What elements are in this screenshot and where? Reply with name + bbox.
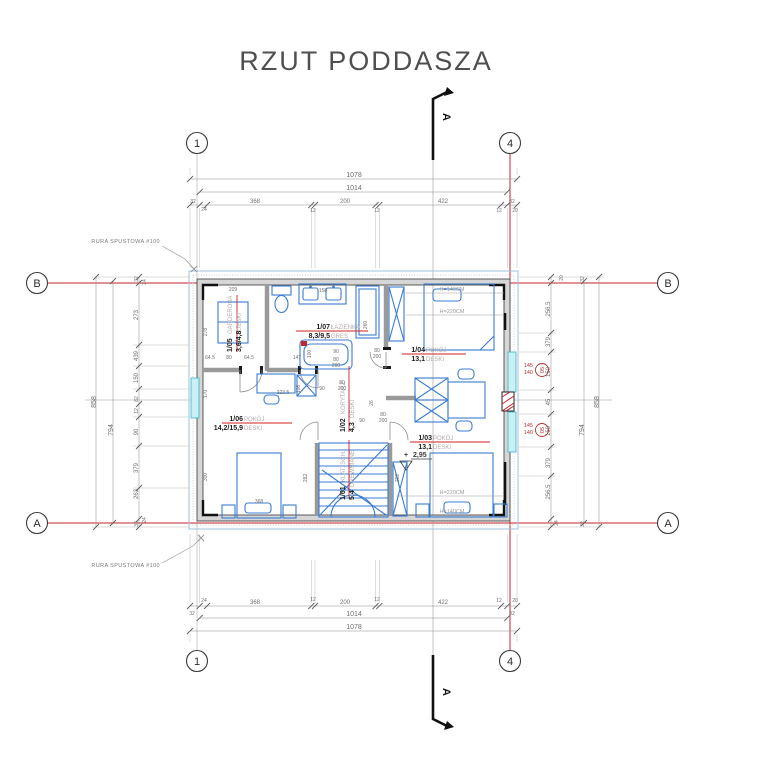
dim-label: 24 (201, 207, 207, 213)
room-name: POKÓJ (426, 347, 446, 354)
height-label: H=220CM (440, 309, 465, 315)
dim-label: 12 (496, 598, 502, 604)
room-floor: DESKI (350, 400, 356, 418)
dim-label: 223.5 (277, 390, 290, 396)
room-floor: DESKI (244, 426, 262, 432)
window-width: 145 (524, 423, 533, 429)
bed-room104 (424, 284, 494, 350)
bubble-label: B (664, 278, 671, 290)
dim-label: 200 (340, 600, 351, 606)
downspout-label-top: RURA SPUSTOWA #100 (91, 239, 160, 245)
dim-label: 379 (134, 462, 140, 473)
door-garderoba (240, 370, 262, 392)
door-room103 (390, 422, 408, 440)
level-marker: + 2,95 (400, 452, 432, 470)
double-sink (299, 284, 346, 304)
room-labels: 1/07 ŁAZIENKA 8,3/9,5 GRES 1/05 GARDEROB… (214, 295, 490, 500)
section-arrow-top (444, 87, 454, 96)
dim-chain-right: 858 794 32 256.5 379 150 45 150 379 256.… (519, 274, 604, 530)
section-letter-bottom: A (440, 688, 452, 696)
room-area: 3,6/4,8 (236, 330, 243, 352)
dim-label: 368 (250, 199, 261, 205)
downspout-leader-top (162, 246, 194, 269)
dim-label: 12 (374, 597, 380, 603)
room-id: 1/05 (227, 338, 234, 352)
room-label-pokoj103: 1/03 POKÓJ 13,1 DESKI (410, 435, 490, 451)
cabinets-middle (415, 378, 448, 422)
bubble-label: A (664, 518, 672, 530)
dim-label: 20 (512, 598, 518, 604)
dim-label: 12 (310, 208, 316, 214)
bubble-label: B (33, 278, 40, 290)
dim-label: 439 (134, 350, 140, 361)
dim-chain-left: 858 794 32 24 273 439 150 82 12 90 379 2… (91, 274, 189, 530)
dim-label: 256.5 (546, 484, 552, 500)
desk-room106 (257, 374, 295, 404)
height-label: H=140CM (440, 287, 465, 293)
bubble-label: 1 (194, 656, 200, 668)
dim-label: 20 (559, 275, 565, 281)
dim-label: 200 (373, 354, 382, 360)
room-area: 14,2/15,9 (214, 425, 243, 432)
dim-label: 263 (134, 488, 140, 499)
dim-label: 422 (438, 199, 449, 205)
desk-middle (448, 369, 485, 431)
dim-label: 200 (340, 199, 351, 205)
room-label-pokoj104: 1/04 POKÓJ 13,1 DESKI (402, 347, 466, 363)
room-id: 1/04 (411, 347, 425, 354)
bubble-label: 4 (507, 138, 513, 150)
room-area: 13,1 (418, 444, 432, 451)
wardrobe-room104 (389, 287, 404, 341)
dim-label: 278 (203, 328, 209, 337)
window-right-lower (508, 412, 516, 452)
furniture (218, 284, 507, 518)
dim-label: 90 (134, 428, 140, 435)
floor-plan-svg: RZUT PODDASZA A A 1 4 1 4 B B A A (0, 0, 777, 768)
dim-label: 1078 (346, 172, 362, 179)
dim-label: 80 (226, 355, 232, 361)
level-value: 2,95 (413, 452, 427, 459)
dim-label: 209 (229, 287, 238, 293)
dim-label: 12 (310, 597, 316, 603)
dim-label: 24 (554, 520, 560, 526)
dim-label: 12 (496, 208, 502, 214)
chimney-frame (502, 392, 514, 411)
chair-bottom (456, 421, 472, 431)
dim-label: 273 (134, 309, 140, 320)
dim-label: 200 (332, 363, 341, 369)
room-id: 1/02 (340, 418, 347, 432)
dim-label: 1014 (346, 185, 362, 192)
window-code: 05 (540, 427, 546, 433)
dim-label: 422 (438, 600, 449, 606)
bed-room106 (222, 453, 296, 518)
dim-label: 147 (293, 355, 302, 361)
room-name: POKÓJ (244, 416, 264, 423)
dim-label: 32 (134, 276, 140, 282)
dim-label: 64.5 (205, 355, 215, 361)
dim-label: 12 (374, 208, 380, 214)
bubble-label: 1 (194, 138, 200, 150)
room-name: ŁAZIENKA (331, 325, 360, 331)
room-id: 1/03 (418, 435, 432, 442)
dim-label: 45 (546, 398, 552, 405)
room-floor: DESKI (433, 445, 451, 451)
room-id: 1/01 (340, 486, 347, 500)
room-floor: DESKI (426, 357, 444, 363)
room-id: 1/06 (229, 416, 243, 423)
room-area: 5,4 (349, 490, 356, 500)
height-label: H=220CM (440, 490, 465, 496)
height-contours: H=140CM H=220CM H=220CM H=140CM (396, 287, 504, 515)
dim-label: 26 (369, 400, 375, 406)
window-sill: 140 (524, 370, 533, 376)
chimney-block (502, 392, 514, 411)
bathtub-mixer (301, 341, 307, 346)
room-label-klatka: 1/01 KLAT. SCH. 5,4 DREWNIANE (340, 440, 356, 500)
downspout-leader-bottom (162, 538, 201, 563)
dim-label: 858 (594, 396, 601, 408)
dim-label: 32 (580, 521, 586, 527)
dim-label: 1078 (346, 624, 362, 631)
dim-label: 379 (546, 336, 552, 347)
dim-label: 24 (142, 279, 148, 285)
downspout-marker-bottom (198, 535, 204, 541)
window-right-upper (508, 352, 516, 392)
room-name: GARDEROBA (228, 296, 234, 334)
dim-label: 82 (134, 396, 140, 402)
dim-label: 108 (296, 385, 302, 394)
dim-label: 90 (319, 386, 325, 392)
chair-top (458, 369, 474, 379)
room-name: KLAT. SCH. (341, 450, 347, 482)
dim-chain-bottom: 32 24 368 12 200 12 422 12 20 32 1014 10… (187, 534, 520, 642)
dim-label: 32 (509, 199, 515, 205)
dim-label: 379 (546, 457, 552, 468)
dim-label: 170 (203, 390, 209, 399)
height-label: H=140CM (440, 509, 465, 515)
room-area: 8,3/9,5 (309, 333, 331, 340)
section-flag-top (433, 92, 447, 160)
dim-label: 32 (509, 611, 515, 617)
dim-label: 368 (255, 499, 264, 505)
dim-label: 300 (203, 473, 209, 482)
room-floor: GRES (331, 334, 348, 340)
room-id: 1/07 (316, 324, 330, 331)
dim-label: 12 (134, 408, 140, 414)
dim-label: 64.5 (244, 355, 254, 361)
dim-chain-top: 1078 1014 32 24 368 12 200 12 422 12 20 … (187, 168, 520, 268)
window-code: 05 (540, 367, 546, 373)
dim-label: 150 (134, 372, 140, 383)
drawing-canvas: RZUT PODDASZA A A 1 4 1 4 B B A A (0, 0, 777, 768)
dim-label: 368 (250, 600, 261, 606)
level-sign: + (404, 452, 408, 459)
dim-label: 256.5 (546, 301, 552, 317)
room-floor: DESKI (237, 313, 243, 331)
dim-label: 150 (546, 366, 552, 377)
dim-label: 260 (363, 321, 369, 330)
room-area: 13,1 (411, 356, 425, 363)
room-floor: DREWNIANE (350, 450, 356, 487)
dim-label: 282 (303, 474, 309, 483)
bed-room103 (416, 453, 507, 517)
section-letter-top: A (440, 113, 452, 121)
wardrobe-room103 (393, 462, 407, 516)
dim-label: 858 (91, 396, 98, 408)
dim-label: 20 (512, 208, 518, 214)
door-room106 (300, 422, 318, 440)
toilet (272, 286, 291, 313)
dim-label: 24 (201, 598, 207, 604)
dim-label: 200 (338, 386, 347, 392)
room-label-korytarz: 1/02 KORYTARZ 4,3 DESKI (340, 366, 356, 432)
room-name: POKÓJ (433, 435, 453, 442)
room-label-pokoj106: 1/06 POKÓJ 14,2/15,9 DESKI (214, 416, 292, 432)
window-width: 145 (524, 363, 533, 369)
dim-label: 32 (189, 611, 195, 617)
room-area: 4,3 (349, 422, 356, 432)
dim-label: 32 (190, 199, 196, 205)
downspout-label-bottom: RURA SPUSTOWA #100 (91, 563, 160, 569)
dim-label: 200 (379, 418, 388, 424)
dim-label: 32 (134, 521, 140, 527)
door-jambs (239, 347, 391, 374)
bubble-label: A (33, 518, 41, 530)
window-left (191, 378, 199, 418)
section-arrow-bottom (444, 721, 454, 730)
bubble-label: 4 (507, 656, 513, 668)
dim-label: 1014 (346, 611, 362, 618)
dim-label: 794 (579, 424, 586, 436)
dim-label: 90 (359, 418, 365, 424)
dim-label: 158 (319, 288, 328, 294)
dim-label: 24 (142, 517, 148, 523)
dim-label: 794 (108, 424, 115, 436)
dim-label: 90 (333, 349, 339, 355)
dim-label: 100 (307, 350, 313, 359)
roof-height-lines (396, 293, 504, 496)
chair-room106 (264, 395, 279, 404)
dim-label: 282 (395, 474, 401, 483)
dim-label: 32 (580, 276, 586, 282)
window-sill: 140 (524, 430, 533, 436)
drawing-title: RZUT PODDASZA (239, 46, 493, 76)
